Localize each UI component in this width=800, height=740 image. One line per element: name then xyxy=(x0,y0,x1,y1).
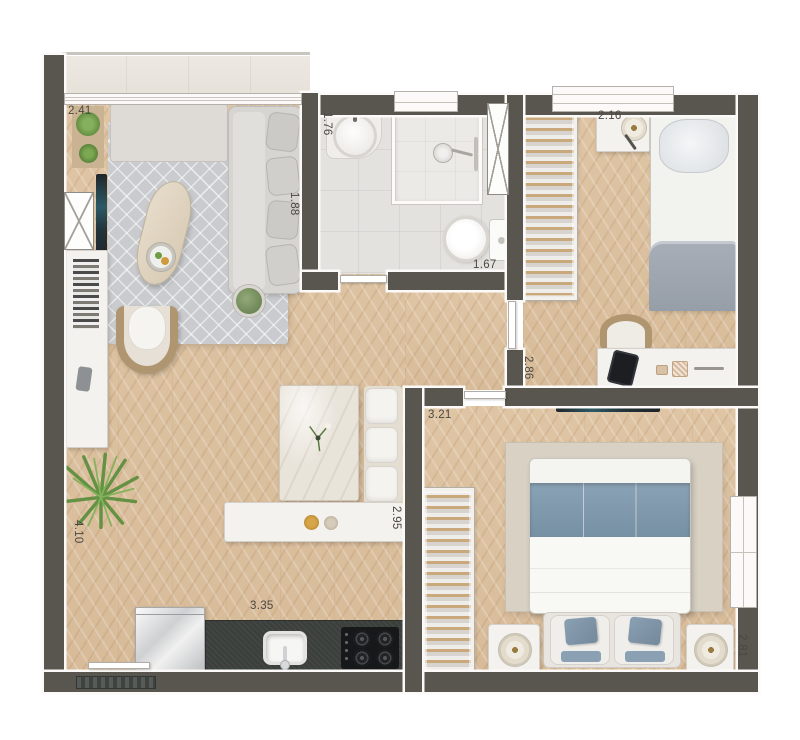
dim-bath-length: 1.67 xyxy=(473,259,497,271)
wall-top xyxy=(310,95,758,115)
lamp-right xyxy=(694,633,728,667)
dim-bedroom1-head: 2.16 xyxy=(598,110,622,122)
bench-pillow-blue xyxy=(628,616,663,645)
remote xyxy=(75,366,92,392)
nightstand-left xyxy=(488,624,540,674)
balcony-plant-2 xyxy=(79,144,98,163)
kitchen-sink xyxy=(263,631,307,665)
faucet-base xyxy=(280,660,290,670)
dining-bench xyxy=(364,386,402,504)
wall-master-left xyxy=(405,388,422,692)
table-flowers xyxy=(300,418,336,458)
bench-cushion xyxy=(365,427,398,463)
balcony-sliding-door xyxy=(64,93,302,105)
bench-strip-blue xyxy=(625,651,665,662)
wall-bathroom-bottom-b xyxy=(388,272,523,290)
wall-bedroom1-left-upper xyxy=(507,95,523,300)
bathroom-shaft-x xyxy=(487,103,509,195)
bed-duvet xyxy=(530,537,690,614)
dim-island: 2.95 xyxy=(390,506,402,530)
shower-arm xyxy=(451,148,473,156)
entry-doormat xyxy=(76,676,156,689)
lamp-left xyxy=(498,633,532,667)
dim-living-length: 4.10 xyxy=(72,520,84,544)
sideboard-books xyxy=(66,250,108,448)
hallway-floor xyxy=(405,290,507,390)
burner xyxy=(376,630,394,648)
wall-left xyxy=(44,55,64,692)
shower-enclosure xyxy=(392,108,482,204)
burner xyxy=(376,649,394,667)
double-bed xyxy=(529,458,691,614)
tablet xyxy=(606,349,639,387)
floor-plan: 2.41 1.76 2.16 1.88 1.67 2.86 3.21 2.95 … xyxy=(0,0,800,740)
desk xyxy=(597,348,738,388)
kitchen-island xyxy=(224,502,404,542)
island-bowl-orange xyxy=(304,515,319,530)
bench-cushion xyxy=(365,466,398,502)
shower-rail xyxy=(474,137,478,171)
burner xyxy=(353,649,371,667)
bed-pillows xyxy=(530,459,690,483)
bedroom1-window xyxy=(552,86,674,112)
island-bowl-beige xyxy=(324,516,338,530)
single-bed-blanket xyxy=(649,241,739,311)
sofa-pillow xyxy=(265,155,301,196)
bathroom-door-leaf xyxy=(340,275,387,283)
knob xyxy=(345,657,348,660)
desk-chair xyxy=(600,314,652,350)
master-wardrobe xyxy=(422,488,474,676)
bed-blanket-blue xyxy=(530,483,690,537)
kitchen-counter xyxy=(205,620,405,672)
single-bed xyxy=(650,112,738,310)
floor-plant-fern xyxy=(58,448,144,538)
rattan-armchair xyxy=(116,306,178,374)
foot-bench xyxy=(543,612,681,668)
bathroom-window xyxy=(394,91,458,112)
potted-plant xyxy=(236,288,262,314)
burner xyxy=(353,630,371,648)
balcony-edge xyxy=(62,52,310,55)
bench-seat xyxy=(550,615,610,665)
bowl-fruit xyxy=(161,257,169,265)
knob xyxy=(345,649,348,652)
shower-head xyxy=(433,143,453,163)
knob xyxy=(345,641,348,644)
nightstand-right xyxy=(686,624,734,674)
sofa-pillow xyxy=(265,111,301,153)
bedroom1-door-leaf xyxy=(508,301,516,349)
dim-kitchen: 3.35 xyxy=(250,600,274,612)
flush-button xyxy=(498,237,505,244)
decor-bowl xyxy=(146,242,176,272)
dim-master-width: 3.21 xyxy=(428,409,452,421)
wall-bathroom-bottom-a xyxy=(302,272,338,290)
dim-bath-width: 1.76 xyxy=(321,112,333,136)
bench-cushion xyxy=(365,388,398,424)
left-wall-cabinet-x xyxy=(64,192,94,250)
toilet-bowl xyxy=(443,216,489,262)
wall-master-top-b xyxy=(505,388,758,406)
books xyxy=(73,259,99,329)
desk-box xyxy=(672,361,688,377)
dim-balcony: 2.41 xyxy=(68,105,92,117)
bench-pillow-blue xyxy=(564,617,598,646)
fridge-divider xyxy=(136,614,204,615)
sofa-seat xyxy=(233,112,265,290)
sofa-pillow xyxy=(264,243,301,287)
side-table xyxy=(232,284,266,318)
knob xyxy=(345,633,348,636)
desk-item xyxy=(656,365,668,375)
bench-seat xyxy=(614,615,674,665)
bedroom1-wardrobe xyxy=(521,110,577,300)
cooktop xyxy=(341,627,399,669)
wall-bathroom-left xyxy=(302,93,318,290)
balcony-floor xyxy=(64,56,310,96)
desk-pen xyxy=(694,367,724,370)
entry-door-leaf xyxy=(88,662,150,669)
dim-living-sofa: 1.88 xyxy=(288,192,300,216)
master-window xyxy=(730,496,757,608)
dim-master-depth: 2.81 xyxy=(736,634,748,658)
bath-vanity xyxy=(326,109,382,159)
window-seat xyxy=(110,104,228,162)
dim-bedroom1-depth: 2.86 xyxy=(522,356,534,380)
wall-bedroom1-left-lower xyxy=(507,350,523,390)
bench-strip-blue xyxy=(561,651,601,662)
single-bed-pillow xyxy=(659,119,729,173)
armchair-cushion xyxy=(128,306,166,350)
master-door-leaf xyxy=(464,391,506,399)
